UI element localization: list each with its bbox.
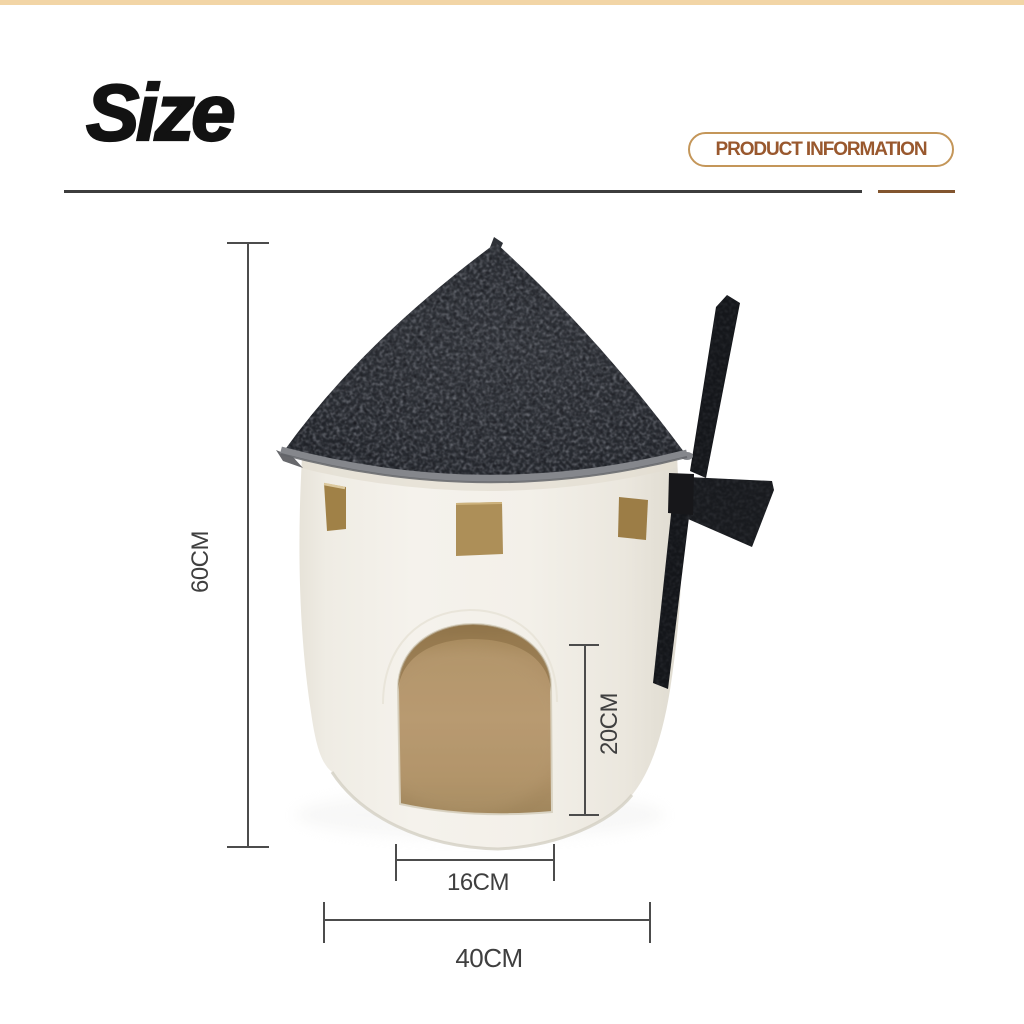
svg-text:20CM: 20CM [596,693,623,755]
svg-text:16CM: 16CM [447,869,509,896]
svg-text:40CM: 40CM [455,943,522,973]
svg-text:60CM: 60CM [187,531,214,593]
